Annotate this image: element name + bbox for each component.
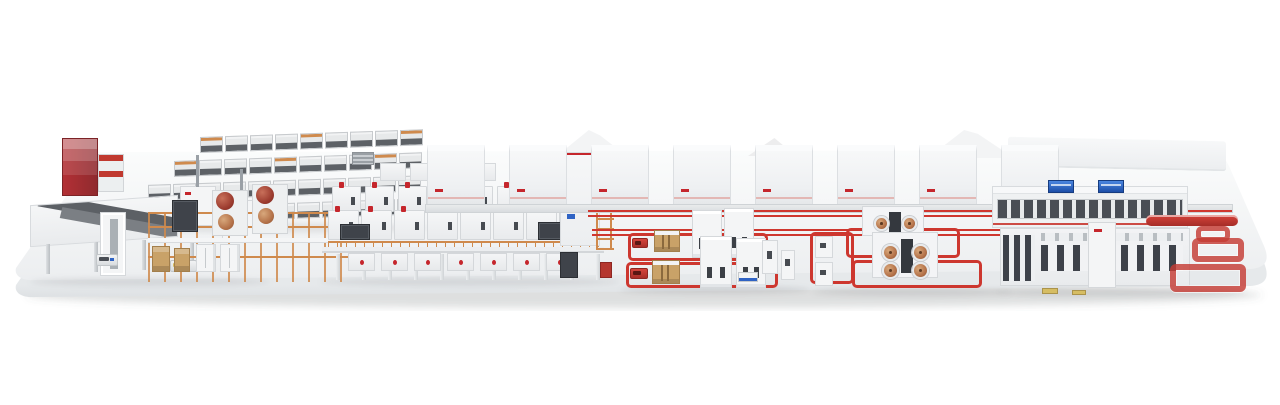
rooftop-vent (352, 152, 374, 165)
under-deck-machine (513, 253, 540, 271)
rack-cell (225, 135, 248, 152)
rack-cell (298, 179, 321, 196)
factory-render-stage (0, 0, 1280, 405)
lift-tower (100, 212, 126, 276)
material-roll (218, 214, 234, 230)
under-deck-machine (381, 253, 408, 271)
control-cabinet (220, 244, 240, 272)
material-roll (216, 192, 234, 210)
rack-cell (274, 157, 297, 174)
aux-machine (815, 262, 833, 286)
table-leg (46, 244, 50, 274)
shadow (812, 288, 1012, 296)
coating-module (394, 210, 425, 240)
side-machine (781, 250, 795, 280)
coating-module (460, 210, 491, 240)
rack-cell (375, 130, 398, 147)
table-leg (142, 240, 146, 270)
dark-panel (172, 200, 198, 232)
robot-station (652, 260, 680, 284)
formation-cabinet (837, 145, 895, 205)
stacker-crane-tower (62, 138, 98, 196)
under-deck-machine (480, 253, 507, 271)
under-deck-machine (447, 253, 474, 271)
corridor-roof (993, 187, 1187, 194)
dark-panel (340, 224, 370, 240)
aux-machine (815, 236, 833, 258)
formation-cabinet (919, 145, 977, 205)
copper-coil (902, 216, 917, 231)
rack-cell (300, 133, 323, 150)
rack-cell (199, 159, 222, 176)
hmi-screen (1098, 180, 1124, 193)
robot-station (654, 230, 680, 252)
red-agv (632, 238, 648, 248)
formation-cabinet (755, 145, 813, 205)
formation-cabinet (427, 145, 485, 205)
material-crate (152, 246, 170, 272)
rack-cell (249, 158, 272, 175)
rack-cell (299, 156, 322, 173)
material-roll (258, 208, 274, 224)
rack-cell (174, 160, 197, 177)
pallet (1042, 288, 1058, 294)
under-deck-machine (414, 253, 441, 271)
coating-module (493, 210, 524, 240)
rack-cell (224, 158, 247, 175)
pack-line-tower (1088, 222, 1116, 288)
rack-cell (350, 131, 373, 148)
copper-coil (882, 244, 899, 261)
rack-cell (250, 134, 273, 151)
copper-coil (874, 216, 889, 231)
pallet (1072, 290, 1086, 295)
rack-cell (200, 136, 223, 153)
formation-cabinet (509, 145, 567, 205)
copper-coil (912, 244, 929, 261)
rooftop-unit (380, 163, 406, 181)
formation-cabinet (673, 145, 731, 205)
control-cabinet (196, 244, 216, 272)
formation-cabinet (591, 145, 649, 205)
tower-machine (700, 236, 732, 288)
support-column (336, 254, 340, 280)
rack-cell (324, 155, 347, 172)
copper-coil (912, 262, 929, 279)
mezzanine-deck (148, 238, 354, 243)
serpentine-conveyor-loop (1170, 264, 1246, 292)
pack-line-window-grid (1003, 235, 1035, 281)
hmi-screen (1048, 180, 1074, 193)
floor-crate (560, 252, 578, 278)
small-red-machine (600, 262, 612, 278)
coating-module (427, 210, 458, 240)
elevated-red-conveyor (1146, 215, 1238, 226)
copper-coil (882, 262, 899, 279)
material-crate (174, 248, 190, 272)
rack-cell (275, 134, 298, 151)
agv (96, 254, 118, 266)
rack-cell (400, 129, 423, 146)
winder-slot (889, 212, 901, 232)
serpentine-conveyor-loop (1192, 238, 1244, 262)
rack-cell (325, 132, 348, 149)
side-machine (762, 240, 778, 274)
rack-buffer-cells (98, 154, 124, 192)
red-agv (630, 268, 648, 279)
material-roll (256, 186, 274, 204)
transfer-cart (738, 272, 758, 282)
under-deck-machine (348, 253, 375, 271)
